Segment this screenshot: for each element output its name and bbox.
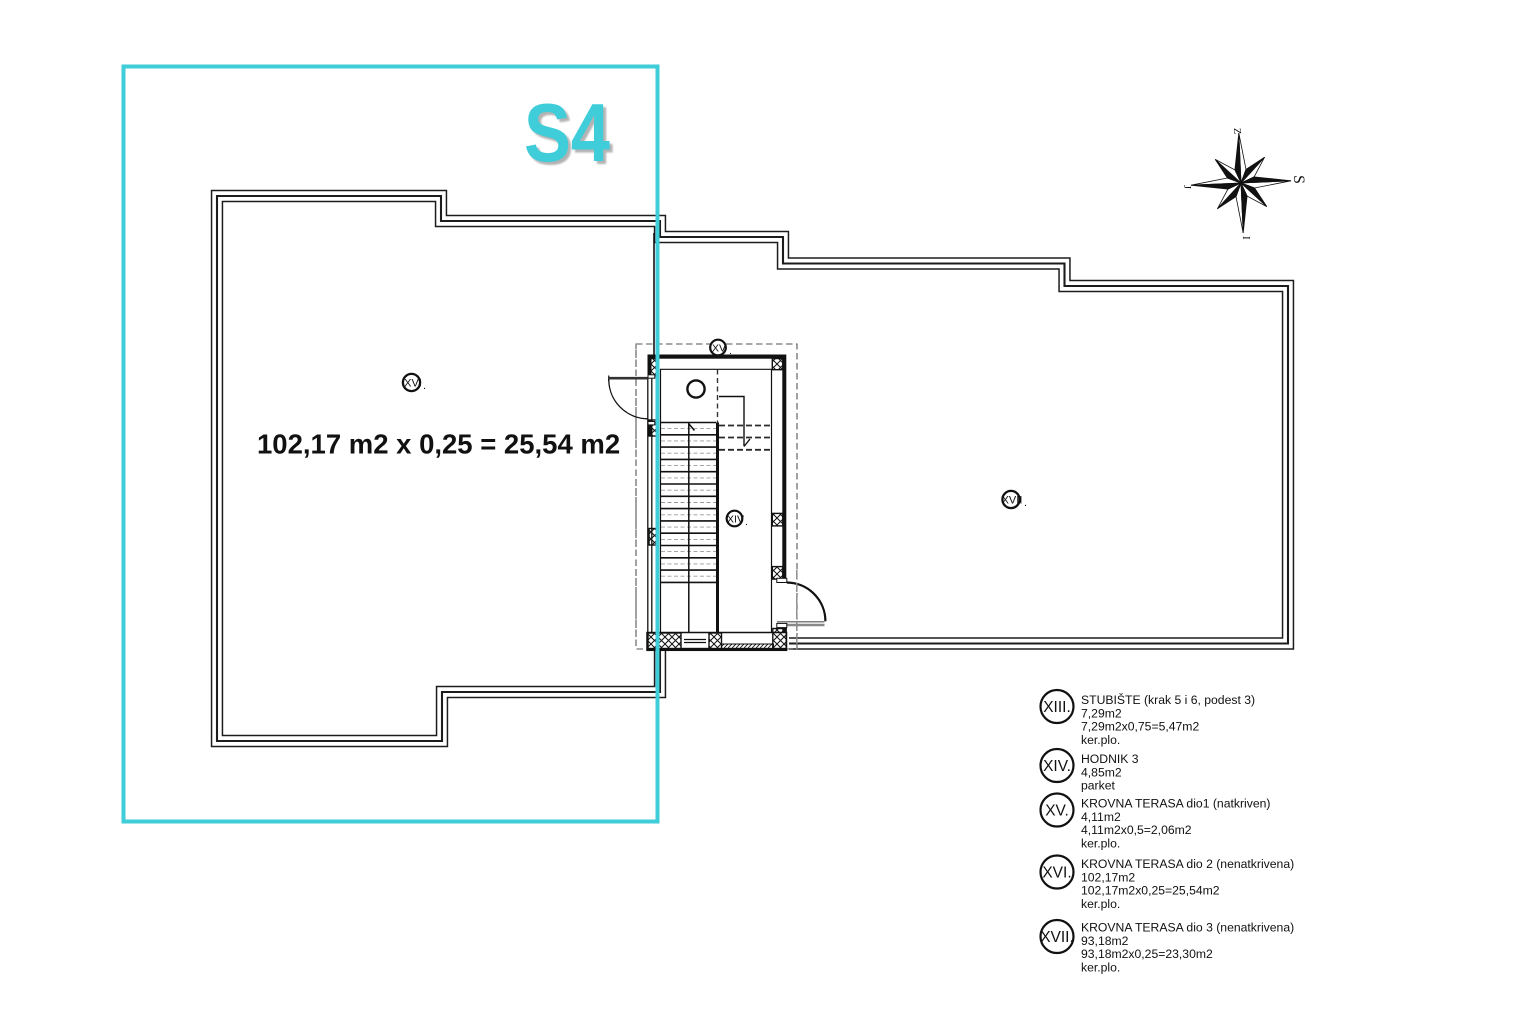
- svg-text:.: .: [1024, 497, 1027, 509]
- svg-text:7,29m2x0,75=5,47m2: 7,29m2x0,75=5,47m2: [1081, 720, 1199, 734]
- svg-text:ker.plo.: ker.plo.: [1081, 837, 1120, 851]
- svg-text:I: I: [1240, 236, 1252, 240]
- svg-text:102,17m2x0,25=25,54m2: 102,17m2x0,25=25,54m2: [1081, 884, 1220, 898]
- svg-text:93,18m2x0,25=23,30m2: 93,18m2x0,25=23,30m2: [1081, 947, 1213, 961]
- svg-text:.: .: [423, 380, 426, 392]
- svg-text:102,17 m2 x 0,25 = 25,54 m2: 102,17 m2 x 0,25 = 25,54 m2: [257, 429, 620, 460]
- svg-text:S4: S4: [524, 86, 610, 179]
- svg-text:XV: XV: [712, 343, 726, 355]
- svg-text:7,29m2: 7,29m2: [1081, 706, 1122, 720]
- svg-text:KROVNA TERASA dio1 (natkriven): KROVNA TERASA dio1 (natkriven): [1081, 797, 1270, 811]
- svg-text:XVI.: XVI.: [1042, 865, 1071, 882]
- svg-text:KROVNA TERASA dio 2 (nenatkriv: KROVNA TERASA dio 2 (nenatkrivena): [1081, 857, 1294, 871]
- svg-text:ker.plo.: ker.plo.: [1081, 733, 1120, 747]
- svg-text:4,11m2x0,5=2,06m2: 4,11m2x0,5=2,06m2: [1081, 823, 1192, 837]
- svg-text:HODNIK 3: HODNIK 3: [1081, 752, 1139, 766]
- svg-text:XIV: XIV: [727, 514, 744, 526]
- svg-text:XVI: XVI: [404, 378, 422, 390]
- svg-text:XVII: XVII: [1002, 495, 1023, 507]
- svg-text:.: .: [729, 345, 732, 357]
- svg-text:XV.: XV.: [1045, 803, 1069, 820]
- svg-text:93,18m2: 93,18m2: [1081, 934, 1129, 948]
- svg-text:J: J: [1181, 185, 1192, 189]
- svg-text:ker.plo.: ker.plo.: [1081, 961, 1120, 975]
- svg-text:102,17m2: 102,17m2: [1081, 870, 1135, 884]
- svg-text:KROVNA TERASA dio 3 (nenatkriv: KROVNA TERASA dio 3 (nenatkrivena): [1081, 921, 1294, 935]
- svg-text:XVII.: XVII.: [1040, 929, 1074, 946]
- svg-text:XIII.: XIII.: [1043, 699, 1071, 716]
- svg-text:parket: parket: [1081, 779, 1115, 793]
- svg-text:S: S: [1290, 175, 1307, 184]
- svg-text:STUBIŠTE (krak 5 i 6, podest 3: STUBIŠTE (krak 5 i 6, podest 3): [1081, 692, 1255, 707]
- svg-text:.: .: [745, 516, 748, 528]
- svg-text:Z: Z: [1231, 128, 1242, 134]
- svg-text:ker.plo.: ker.plo.: [1081, 897, 1120, 911]
- svg-text:XIV.: XIV.: [1043, 758, 1071, 775]
- svg-text:4,11m2: 4,11m2: [1081, 810, 1121, 824]
- svg-text:4,85m2: 4,85m2: [1081, 765, 1122, 779]
